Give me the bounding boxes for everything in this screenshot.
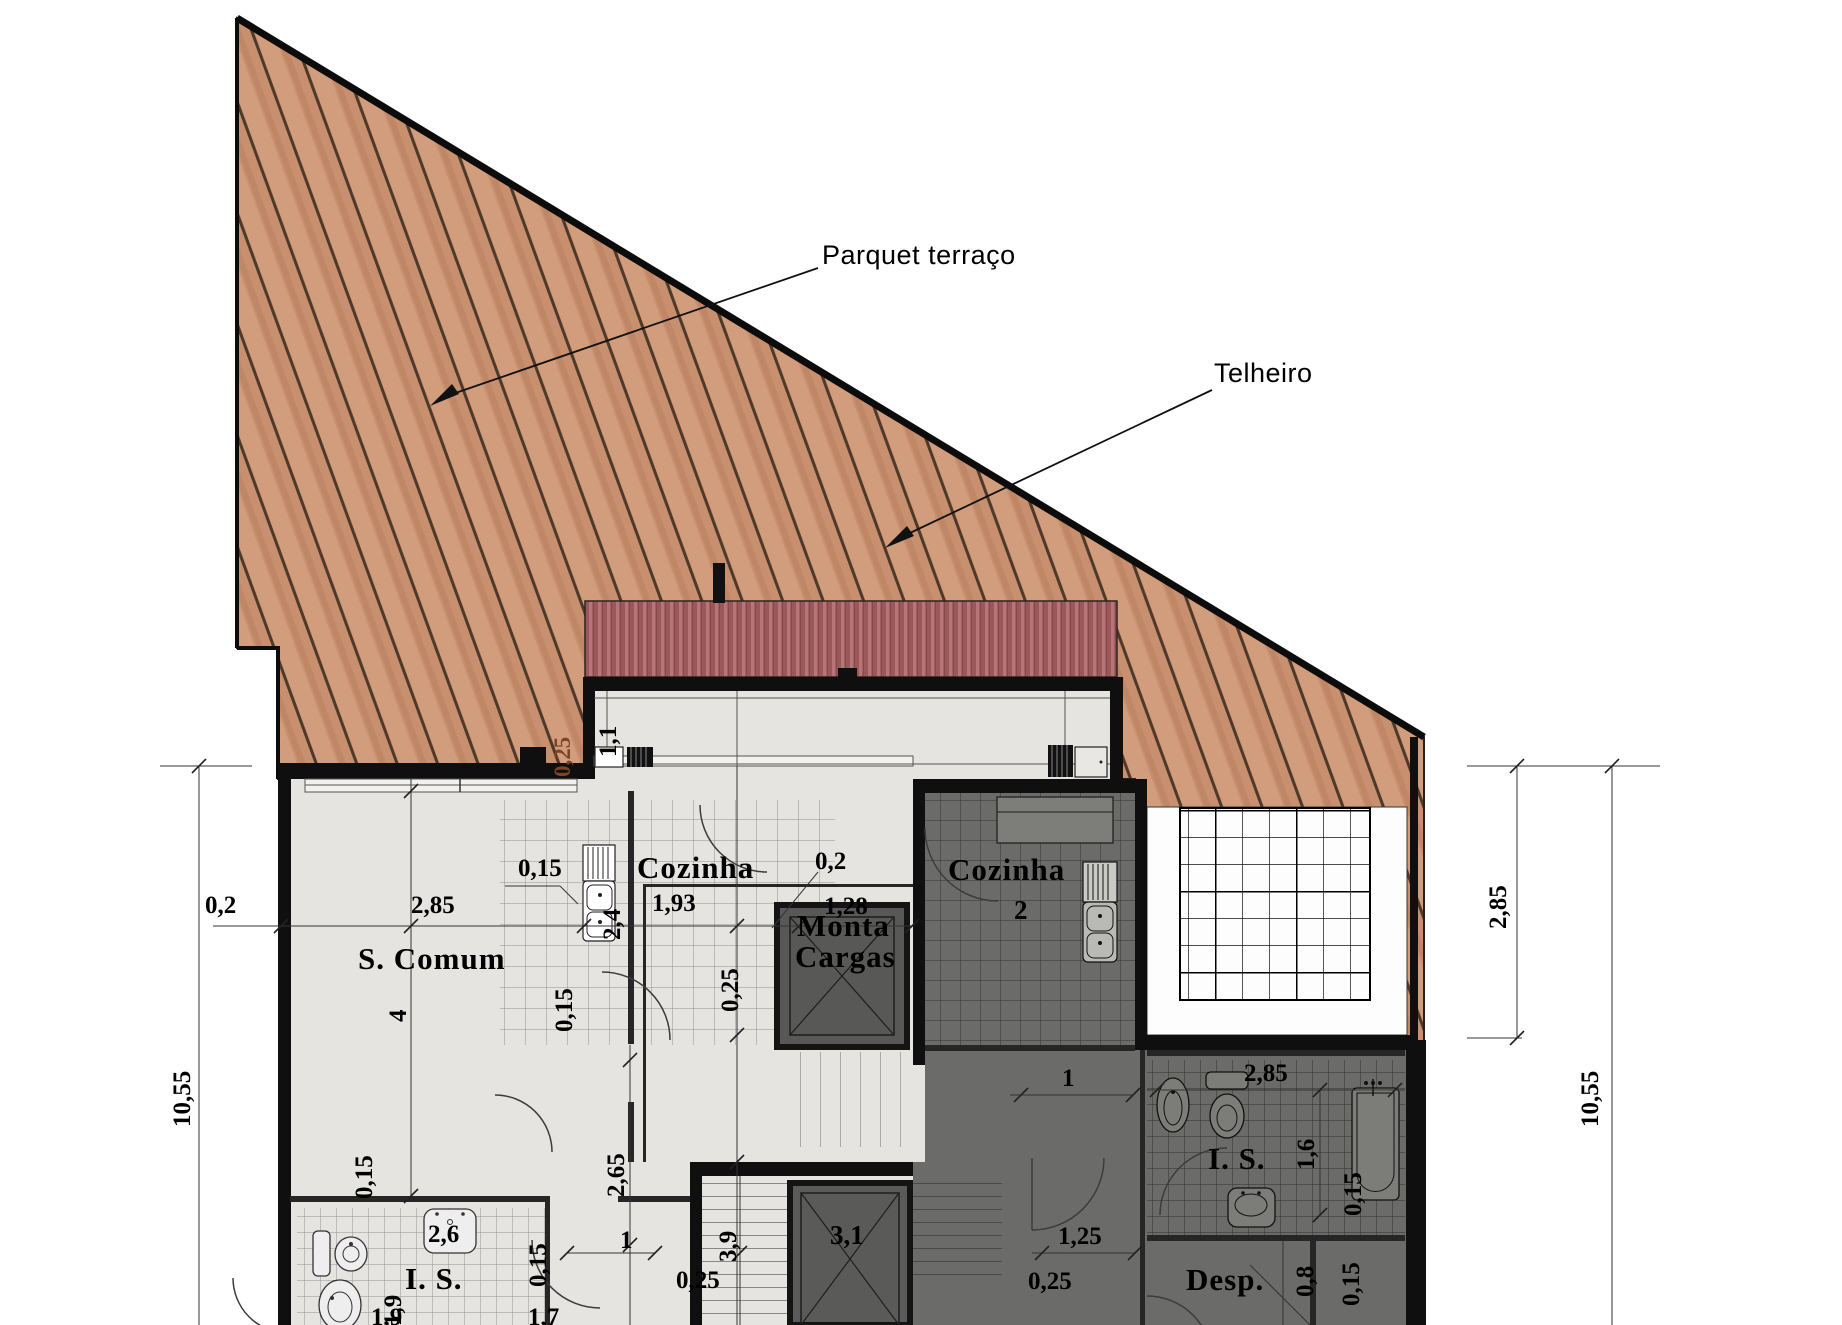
dim-cut-b: 1,7 — [528, 1305, 559, 1325]
dim-hall2-width: 1,25 — [1058, 1224, 1102, 1249]
label-room-cozinha-1: Cozinha — [637, 852, 754, 883]
label-monta-cargas-2: Cargas — [795, 941, 896, 972]
courtyard-skylight — [1147, 807, 1407, 1035]
dim-kitchen-wall: 0,15 — [552, 988, 577, 1032]
dim-desp-wall: 0,15 — [1339, 1262, 1364, 1306]
dim-bath1-wall: 0,15 — [352, 1155, 377, 1199]
dim-kitchen-width: 1,93 — [652, 891, 696, 916]
terrace2-appliances — [1048, 745, 1107, 777]
label-room-cozinha-2: Cozinha — [948, 854, 1065, 885]
roof-stub — [713, 563, 725, 603]
dim-basin-1: 2,6 — [428, 1222, 459, 1247]
dim-hall-a: 1 — [1062, 1066, 1075, 1091]
dim-right-total: 10,55 — [1578, 1071, 1603, 1127]
dim-stair-wall: 0,25 — [676, 1268, 720, 1293]
dim-bath1-depth: 1,9 — [381, 1295, 406, 1325]
dim-corridor-wall: 0,25 — [718, 968, 743, 1012]
annotation-parquet-terrace: Parquet terraço — [822, 242, 1016, 269]
elevator-shaft — [790, 1183, 910, 1325]
dim-kitchen-offset: 0,2 — [815, 849, 846, 874]
label-room-cozinha-2-num: 2 — [1014, 897, 1028, 924]
dim-hall2-wall: 0,25 — [1028, 1269, 1072, 1294]
kitchen2-sink — [1083, 862, 1117, 962]
dim-stair-width: 3,9 — [716, 1231, 741, 1262]
washbasin-2 — [1228, 1188, 1275, 1227]
label-room-s-comum: S. Comum — [358, 943, 506, 974]
dim-hall-c: 1 — [620, 1228, 633, 1253]
floor-plan-drawing — [0, 0, 1842, 1325]
dim-terrace-height: 1,1 — [596, 726, 621, 757]
core-wall-opening — [913, 1065, 925, 1162]
dim-right-upper: 2,85 — [1486, 885, 1511, 929]
toilet-2 — [1206, 1072, 1248, 1138]
dim-s-comum-height: 4 — [386, 1010, 411, 1023]
label-room-desp: Desp. — [1186, 1264, 1264, 1295]
dim-hall-wall: 0,15 — [526, 1243, 551, 1287]
floor-plan-canvas: Parquet terraço Telheiro S. Comum Cozinh… — [0, 0, 1842, 1325]
dim-s-comum-width: 2,85 — [411, 893, 455, 918]
label-room-is-1: I. S. — [405, 1263, 463, 1294]
dim-wall-015-a: 0,15 — [518, 856, 562, 881]
dim-terrace-wall: 0,25 — [551, 737, 574, 777]
stair-treads-upper — [784, 1052, 904, 1147]
label-room-is-2: I. S. — [1208, 1143, 1266, 1174]
annotation-telheiro: Telheiro — [1214, 360, 1313, 387]
dim-bath2-width: 2,85 — [1244, 1061, 1288, 1086]
stair-flight-right — [912, 1176, 1002, 1286]
dim-left-offset: 0,2 — [205, 893, 236, 918]
bidet-1 — [319, 1280, 361, 1325]
dim-corridor-height: 2,65 — [604, 1153, 629, 1197]
dim-desp-width: 0,8 — [1293, 1266, 1318, 1297]
dim-bath2-depth: 1,6 — [1294, 1139, 1319, 1170]
dim-bath2-wall: 0,15 — [1341, 1172, 1366, 1216]
dim-lift: 3,1 — [830, 1222, 864, 1249]
dim-left-total: 10,55 — [170, 1071, 195, 1127]
kitchen2-counter — [997, 797, 1113, 843]
dim-monta-width: 1,28 — [824, 894, 868, 919]
dim-kitchen-depth: 2,4 — [600, 909, 625, 940]
